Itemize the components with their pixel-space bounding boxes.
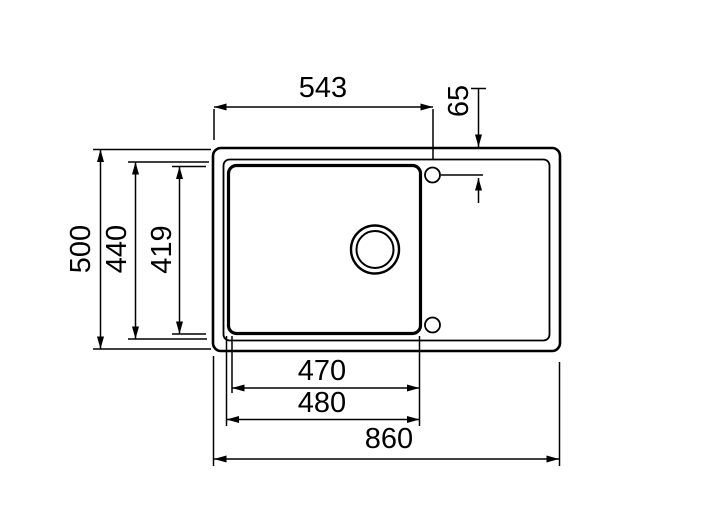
drain-outer-circle (351, 226, 399, 274)
sink-dimension-diagram: 543 65 500 440 419 470 480 860 (0, 0, 708, 508)
dimension-labels: 543 65 500 440 419 470 480 860 (65, 72, 475, 455)
dim-label-bowl-outer-width: 480 (298, 387, 346, 419)
drain-hole (351, 226, 399, 274)
dim-label-overall-depth: 500 (65, 225, 97, 273)
faucet-hole-bottom (425, 318, 440, 333)
technical-drawing-canvas: 543 65 500 440 419 470 480 860 (0, 0, 708, 508)
dim-label-overall-width: 860 (365, 423, 413, 455)
dim-label-top-width: 543 (299, 72, 347, 104)
dim-label-bowl-inner-width: 470 (298, 355, 346, 387)
drain-inner-circle (357, 231, 394, 268)
sink-plan (213, 148, 560, 351)
faucet-hole-top (425, 168, 440, 183)
bowl-outline (229, 166, 421, 334)
dimension-543 (214, 107, 433, 159)
sink-outer-edge (213, 148, 560, 351)
dim-label-rim-depth: 440 (101, 225, 133, 273)
sink-rim (224, 160, 550, 341)
dim-label-bowl-inner-depth: 419 (146, 225, 178, 273)
dim-label-faucet-hole-offset: 65 (443, 85, 475, 117)
